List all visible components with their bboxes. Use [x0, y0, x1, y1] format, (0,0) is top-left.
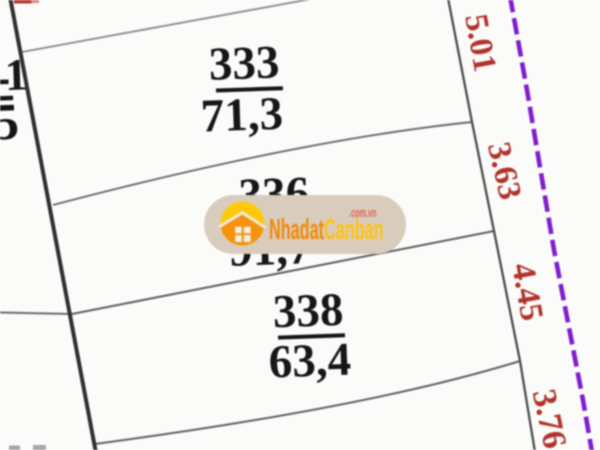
svg-text:71,3: 71,3: [200, 88, 284, 143]
svg-text:1: 1: [4, 49, 28, 100]
svg-text:333: 333: [208, 36, 280, 90]
svg-text:63,4: 63,4: [268, 334, 352, 389]
svg-text:.com.vn: .com.vn: [349, 206, 376, 221]
svg-text:5: 5: [0, 94, 20, 152]
svg-text:338: 338: [272, 284, 344, 338]
